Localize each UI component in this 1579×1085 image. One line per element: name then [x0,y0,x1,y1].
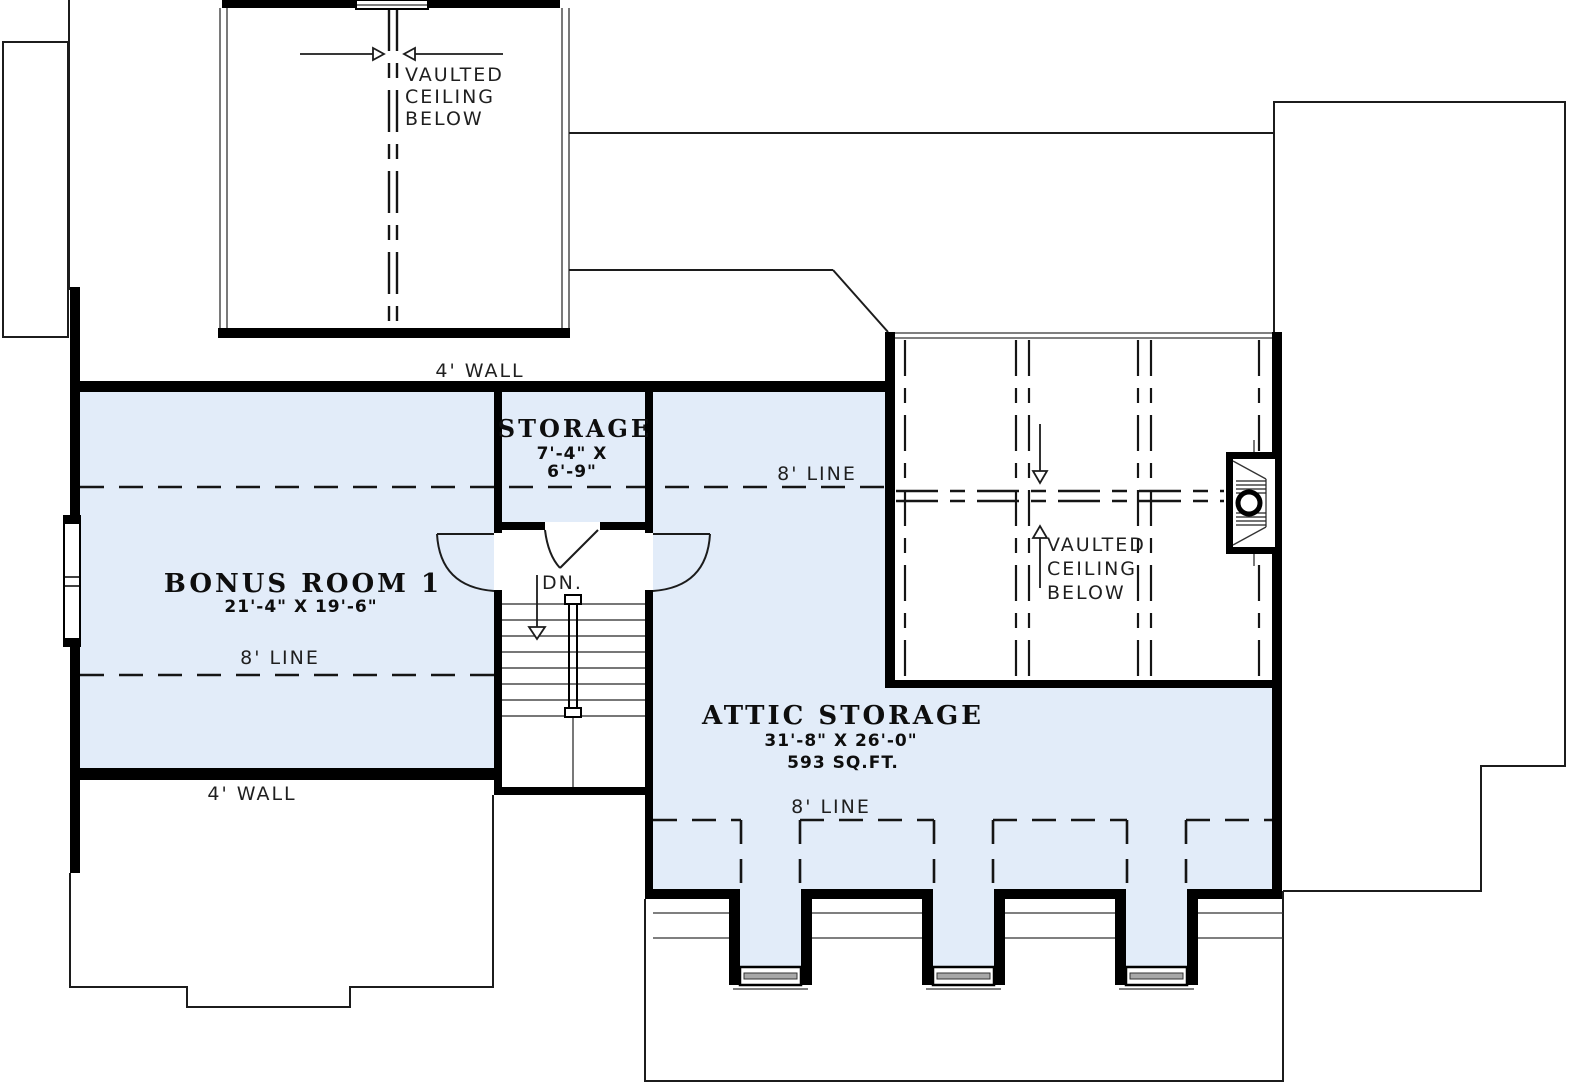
bottom-wall-seg [1005,889,1115,899]
dormer-window [1119,967,1194,989]
dormer-1-area [740,889,801,971]
dormer-window [733,967,808,989]
main-top-wall [70,381,887,392]
staircase [502,575,645,787]
storage-room-dims: 7'-4" X [537,444,608,464]
garage-window [356,0,428,9]
stair-right-wall-lower [645,590,653,899]
eight-foot-label-bonus: 8' LINE [240,647,320,669]
bottom-wall-seg [812,889,922,899]
vaulted-right-label: BELOW [1047,582,1126,604]
vaulted-top-label: VAULTED [405,64,504,86]
roof-edge-left-box [3,42,68,337]
vaulted-ridge-arrow-down [1033,424,1047,483]
wall-label-bottom: 4' WALL [207,783,296,805]
garage-ridge-arrow-right [404,48,503,60]
vaulted-room-beams [896,340,1259,680]
vaulted-top-label: CEILING [405,86,495,108]
bonus-bottom-wall [70,768,502,780]
garage-ridge-arrow-left [300,48,384,60]
bottom-wall-seg [653,889,729,899]
stair-bottom-wall [494,787,653,795]
vaulted-right-label: CEILING [1047,558,1137,580]
storage-room-name: STORAGE [498,414,652,443]
storage-bottom-wall-left [502,522,545,530]
garage-top-wall-right [428,0,560,8]
vaulted-left-wall [885,332,895,688]
stair-treads [502,604,645,787]
garage-top-wall-left [222,0,356,8]
garage-bottom-wall [218,328,570,338]
attic-room-area: 593 SQ.FT. [787,753,899,773]
floor-plan: VAULTED CEILING BELOW 4' WALL STORAGE 7'… [0,0,1579,1085]
attic-room-dims: 31'-8" X 26'-0" [764,731,917,751]
vaulted-ridge-arrow-up [1033,526,1047,588]
down-label: DN. [542,572,583,594]
dormer-2-area [933,889,994,971]
bonus-window [64,516,80,646]
stair-rail [565,595,581,717]
attic-room-name: ATTIC STORAGE [701,701,984,731]
bottom-wall-seg [1198,889,1274,899]
roof-line-diagonal [833,270,888,332]
fireplace [1226,440,1282,566]
roof-edge-top-right [1274,102,1565,891]
storage-bottom-wall-right [600,522,645,530]
wall-label-top: 4' WALL [435,360,524,382]
dormer-window [926,967,1001,989]
bonus-room-name: BONUS ROOM 1 [164,569,442,599]
storage-room-dims: 6'-9" [547,462,597,482]
vaulted-bottom-wall [885,680,1273,688]
dormer-3-area [1126,889,1187,971]
vaulted-top-label: BELOW [405,108,484,130]
eight-foot-label-upper: 8' LINE [777,463,857,485]
storage-door [545,530,598,568]
eight-foot-label-attic: 8' LINE [791,796,871,818]
bonus-room-dims: 21'-4" X 19'-6" [224,597,377,617]
roof-edge-bottom-left [70,795,493,1007]
vaulted-right-label: VAULTED [1047,534,1146,556]
flue-icon [1238,492,1260,514]
right-exterior-wall [1272,332,1282,899]
stair-left-wall-lower [494,590,502,787]
